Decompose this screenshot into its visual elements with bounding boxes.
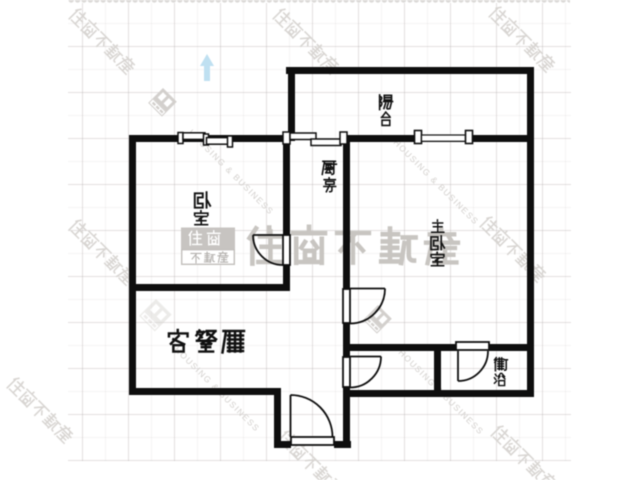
svg-text:HOUSING & BUSINESS: HOUSING & BUSINESS <box>392 137 481 226</box>
